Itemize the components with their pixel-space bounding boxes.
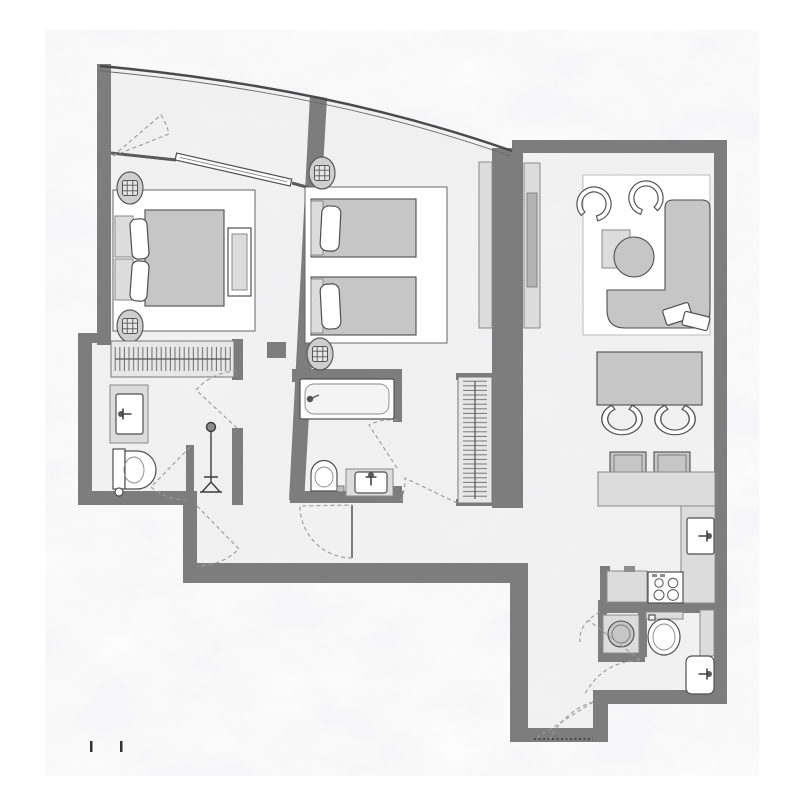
wardrobe-panel xyxy=(479,162,492,328)
wall-wing-divider xyxy=(492,148,523,508)
basin xyxy=(686,656,714,694)
wall-left-upper xyxy=(97,64,111,345)
bench-cushion xyxy=(232,234,247,290)
wall-leftwing-bottom xyxy=(78,491,197,505)
wall-right-outer xyxy=(714,140,727,704)
bathtub xyxy=(300,379,394,419)
pillow-top xyxy=(320,206,341,252)
cooktop-4-burners xyxy=(648,572,683,603)
tick-mark-1 xyxy=(90,741,93,752)
wall-masterbath-stub xyxy=(186,445,194,505)
double-bed-mattress xyxy=(145,210,224,306)
wardrobe-hanging-rail xyxy=(111,341,234,377)
wall-masterbath-right-lower xyxy=(232,428,243,505)
dining-table xyxy=(597,352,702,405)
kitchen-sink xyxy=(687,518,714,554)
pillow-top xyxy=(130,218,150,259)
wall-left-lower xyxy=(78,338,92,505)
column-master-top xyxy=(117,172,143,204)
pillow-bottom xyxy=(320,284,341,330)
master-bedroom xyxy=(111,172,255,377)
wall-masterdoor-jamb xyxy=(267,342,286,358)
coffee-table-round xyxy=(614,237,654,277)
vanity-sink xyxy=(346,469,393,496)
tick-mark-2 xyxy=(120,741,123,752)
column-twin-top xyxy=(309,157,335,189)
floor-plan-drawing xyxy=(0,0,800,800)
tv-screen xyxy=(527,193,537,287)
wall-entry-left xyxy=(510,583,528,742)
column-master-bottom xyxy=(117,310,143,342)
wall-bottom-long xyxy=(183,563,528,583)
scale-tick-marks xyxy=(90,741,123,752)
floor-plan-page xyxy=(0,0,800,800)
closet-hanging-rail xyxy=(458,377,492,503)
column-twin-bottom xyxy=(307,338,333,370)
cabinet xyxy=(607,566,647,602)
counter-top-band xyxy=(598,472,715,506)
shower-panel-strip xyxy=(700,610,714,656)
wall-rightwing-top xyxy=(512,140,727,153)
utility-niche xyxy=(603,615,639,653)
pillow-bottom xyxy=(130,260,150,301)
